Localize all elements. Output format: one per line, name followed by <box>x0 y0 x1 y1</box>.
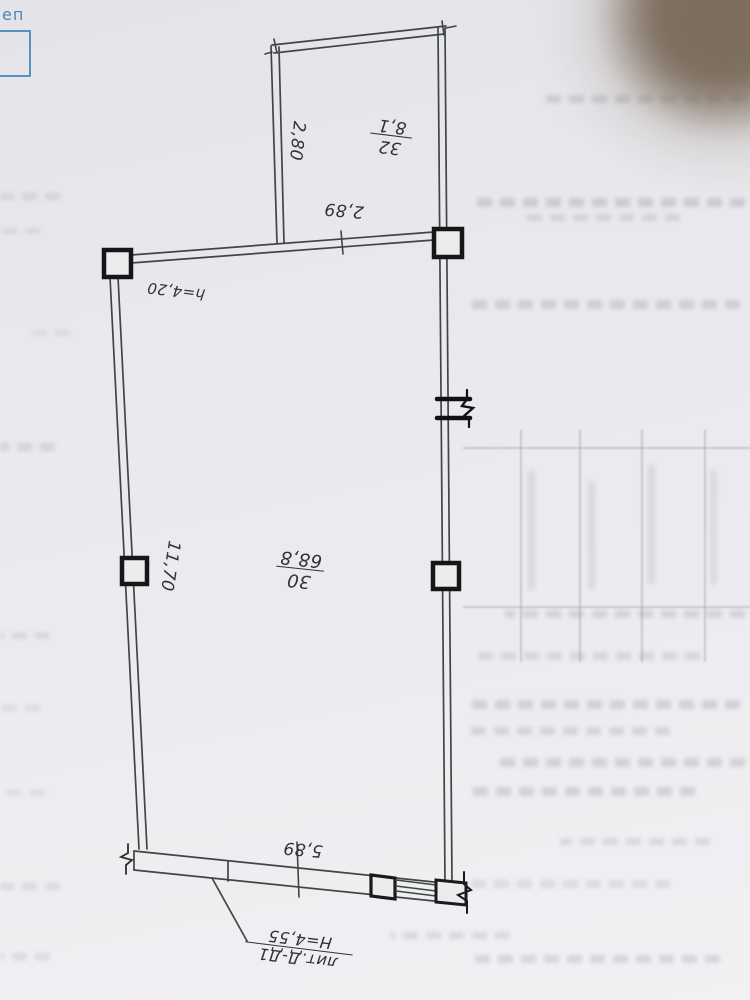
dimension-room30-bottom: 5,89 <box>282 837 323 860</box>
dimension-room32-bottom: 2,89 <box>323 198 364 221</box>
room-32-label: 32 8,1 <box>368 114 415 159</box>
room-area: 8,1 <box>377 114 408 137</box>
right-wall <box>438 28 452 882</box>
bottom-wall-end-block <box>436 880 466 905</box>
bottom-wall-pier <box>371 875 395 899</box>
room-30-top-wall <box>131 232 434 263</box>
room-number: 32 <box>377 135 402 157</box>
column-top-left <box>104 250 131 277</box>
registry-stamp-text: еп <box>2 5 24 24</box>
column-mid-left <box>122 558 147 584</box>
callout-leader-line <box>212 878 247 941</box>
right-wall-opening-symbol <box>437 390 473 427</box>
dimension-room32-side: 2,80 <box>285 120 309 162</box>
column-mid-right <box>433 563 459 589</box>
photographed-floor-plan-page: 2,80 32 8,1 2,89 h=4,20 11,70 30 68,8 5,… <box>0 0 750 1000</box>
room-30-label: 30 68,8 <box>274 545 326 592</box>
column-top-right <box>434 229 462 257</box>
break-mark-left <box>121 844 132 874</box>
room-number: 30 <box>286 568 312 591</box>
room-area: 68,8 <box>279 546 323 571</box>
registry-stamp-box <box>0 30 31 77</box>
